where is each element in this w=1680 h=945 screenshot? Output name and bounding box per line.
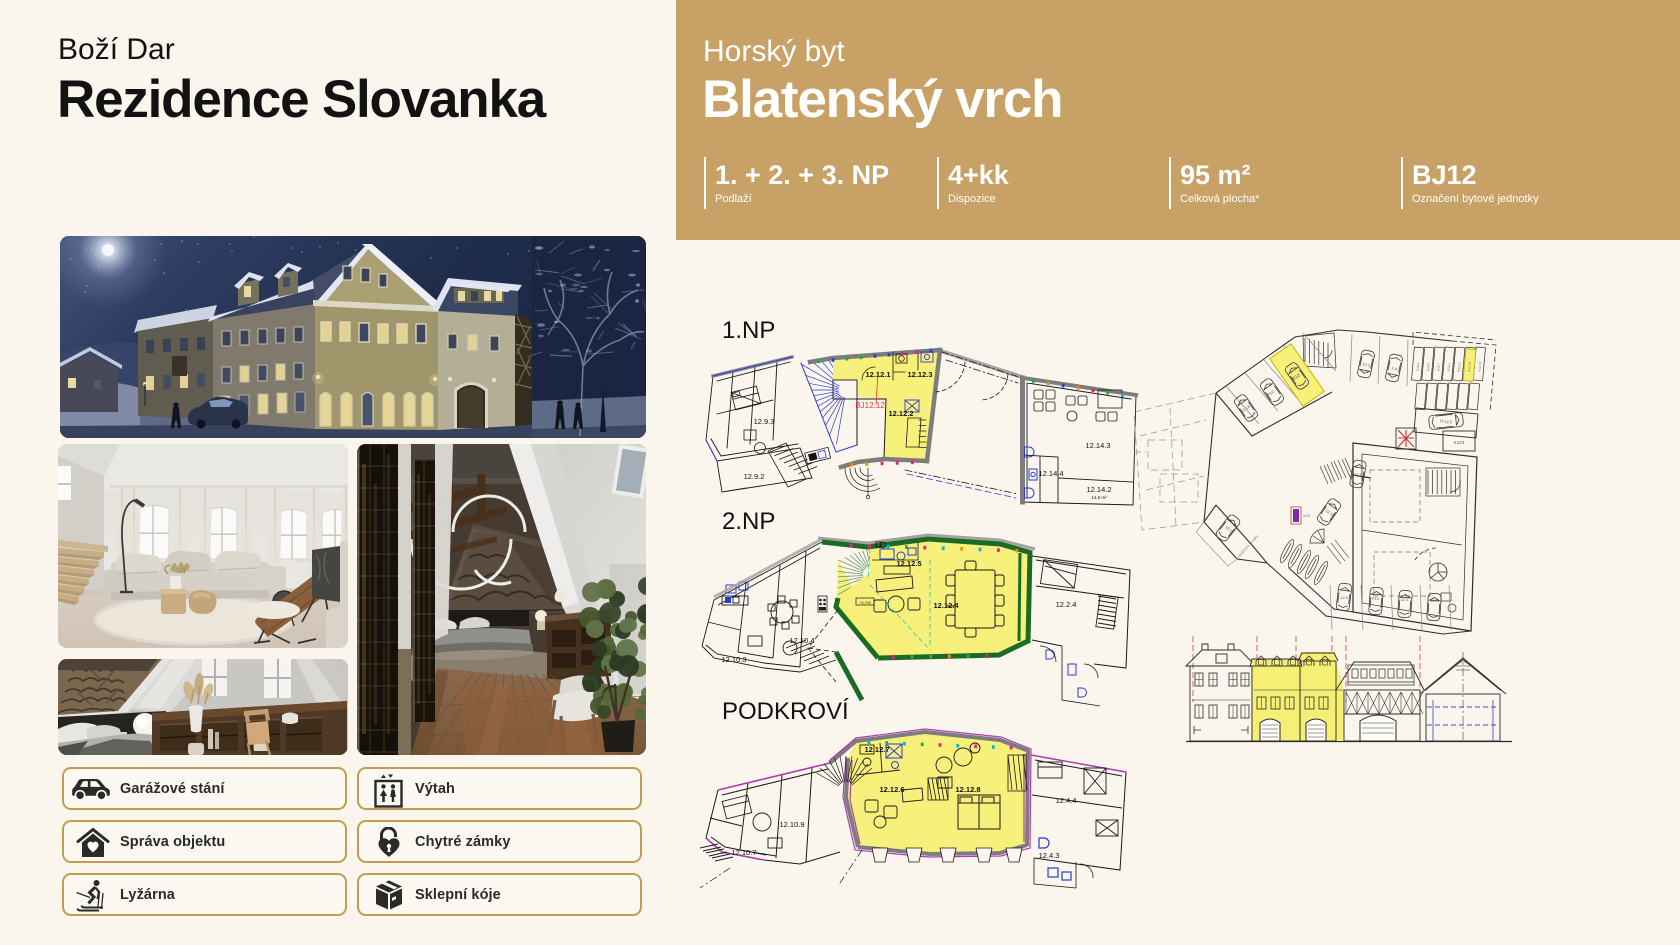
- svg-text:12.12.3: 12.12.3: [907, 370, 932, 379]
- svg-text:2.4: 2.4: [1391, 366, 1398, 372]
- svg-text:12.12.2: 12.12.2: [888, 409, 913, 418]
- svg-text:12.1: 12.1: [1401, 597, 1410, 602]
- svg-text:K12.4: K12.4: [1416, 362, 1421, 371]
- svg-text:1.NP: 1.NP: [722, 317, 775, 344]
- svg-text:12.4.4: 12.4.4: [1056, 796, 1077, 805]
- svg-text:P-12.5: P-12.5: [1440, 418, 1453, 424]
- svg-text:PODKROVÍ: PODKROVÍ: [722, 698, 849, 725]
- svg-text:12.4.3: 12.4.3: [1039, 851, 1060, 860]
- svg-text:12.12.5: 12.12.5: [896, 559, 921, 568]
- svg-text:12.12.4: 12.12.4: [933, 601, 959, 610]
- svg-text:12.1: 12.1: [1362, 361, 1371, 368]
- svg-text:BJ12.12: BJ12.12: [855, 401, 885, 410]
- svg-text:12.12.1: 12.12.1: [865, 370, 890, 379]
- svg-text:12.10.3: 12.10.3: [721, 655, 746, 664]
- svg-text:14,6 m²: 14,6 m²: [1091, 495, 1107, 500]
- svg-text:12.14.3: 12.14.3: [1085, 441, 1110, 450]
- svg-text:12.14.4: 12.14.4: [1038, 469, 1063, 478]
- svg-text:12.12.6: 12.12.6: [879, 785, 904, 794]
- svg-text:K123: K123: [1454, 440, 1465, 445]
- svg-text:12.14.2: 12.14.2: [1086, 485, 1111, 494]
- svg-text:12.10.9: 12.10.9: [779, 820, 804, 829]
- svg-text:2.NP: 2.NP: [722, 508, 775, 535]
- svg-text:P12.: P12.: [1372, 596, 1380, 601]
- svg-text:12.9.2: 12.9.2: [744, 472, 765, 481]
- svg-text:V12.: V12.: [1303, 513, 1311, 518]
- svg-text:+3,740: +3,740: [859, 601, 871, 605]
- svg-text:12.12.7: 12.12.7: [864, 745, 889, 754]
- svg-text:K12.6: K12.6: [1426, 362, 1431, 371]
- svg-text:12.10.7: 12.10.7: [731, 848, 756, 857]
- svg-text:12.2.4: 12.2.4: [1056, 600, 1077, 609]
- svg-text:12.9.3: 12.9.3: [754, 417, 775, 426]
- svg-text:K12.11: K12.11: [1457, 362, 1462, 372]
- svg-text:P12.: P12.: [1266, 388, 1276, 397]
- svg-text:K12.1: K12.1: [1447, 362, 1452, 371]
- svg-text:K12.13: K12.13: [1477, 361, 1482, 372]
- svg-text:12.2: 12.2: [1354, 472, 1363, 477]
- svg-text:12.12.8: 12.12.8: [955, 785, 980, 794]
- svg-text:GARÁŽOVÁ RAMPA: GARÁŽOVÁ RAMPA: [1234, 533, 1259, 560]
- svg-text:K12.7: K12.7: [1436, 362, 1441, 371]
- svg-text:12.10.4: 12.10.4: [789, 636, 814, 645]
- svg-text:12.5: 12.5: [1340, 595, 1349, 600]
- svg-text:12.13: 12.13: [1240, 403, 1252, 413]
- svg-text:12.1: 12.1: [1430, 598, 1439, 603]
